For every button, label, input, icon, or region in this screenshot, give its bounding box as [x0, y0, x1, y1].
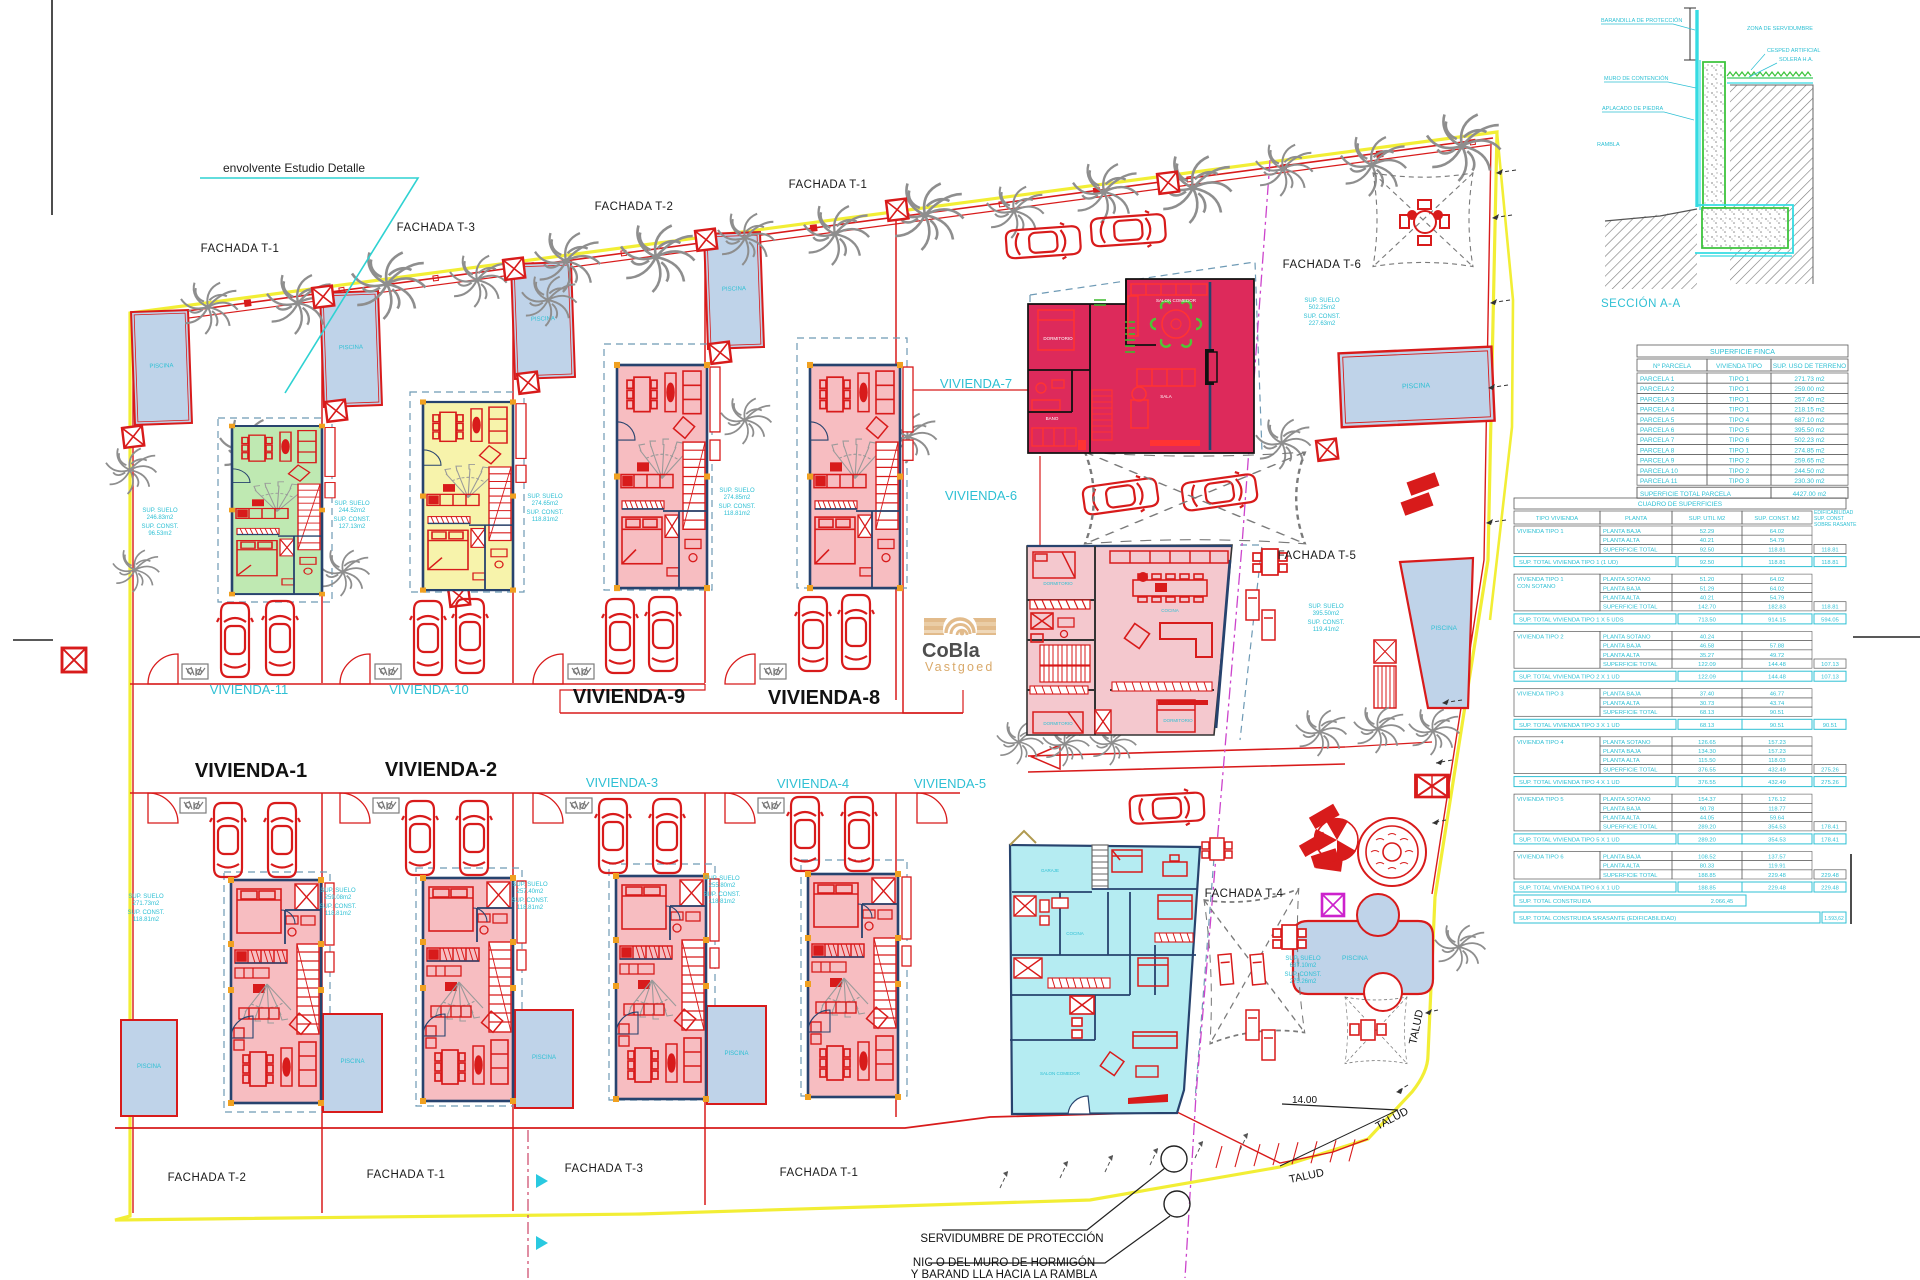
svg-text:230.30 m2: 230.30 m2 — [1794, 478, 1825, 485]
svg-text:43.74: 43.74 — [1770, 701, 1785, 707]
svg-text:PISCINA: PISCINA — [1402, 382, 1431, 390]
svg-text:SUPERFICIE TOTAL PARCELA: SUPERFICIE TOTAL PARCELA — [1640, 491, 1732, 498]
svg-text:914.15: 914.15 — [1768, 617, 1786, 623]
svg-text:PLANTA BAJA: PLANTA BAJA — [1603, 749, 1641, 755]
svg-text:46.77: 46.77 — [1770, 692, 1785, 698]
svg-text:VIVIENDA TIPO 2: VIVIENDA TIPO 2 — [1517, 634, 1564, 640]
svg-text:127.13m2: 127.13m2 — [339, 524, 366, 530]
svg-text:594.05: 594.05 — [1821, 617, 1839, 623]
svg-text:MURO DE CONTENCIÓN: MURO DE CONTENCIÓN — [1604, 75, 1669, 82]
svg-text:259.00 m2: 259.00 m2 — [1794, 386, 1825, 393]
svg-text:118.81m2: 118.81m2 — [517, 905, 544, 911]
svg-text:275.26m2: 275.26m2 — [1290, 979, 1317, 985]
svg-text:118.77: 118.77 — [1768, 806, 1785, 812]
svg-text:118.81m2: 118.81m2 — [532, 517, 559, 523]
svg-text:PLANTA BAJA: PLANTA BAJA — [1603, 806, 1641, 812]
svg-text:CUADRO DE SUPERFICIES: CUADRO DE SUPERFICIES — [1638, 501, 1723, 508]
svg-text:354.53: 354.53 — [1768, 837, 1786, 843]
svg-text:35.27: 35.27 — [1700, 653, 1715, 659]
svg-text:VIVIENDA TIPO 6: VIVIENDA TIPO 6 — [1517, 854, 1564, 860]
svg-text:SUPERFICIE TOTAL: SUPERFICIE TOTAL — [1603, 662, 1658, 668]
svg-text:118.81: 118.81 — [1821, 605, 1838, 611]
svg-text:PARCELA 1: PARCELA 1 — [1640, 376, 1675, 383]
svg-text:SUPERFICIE TOTAL: SUPERFICIE TOTAL — [1603, 547, 1658, 553]
svg-text:VIVIENDA-8: VIVIENDA-8 — [768, 687, 880, 709]
svg-text:VIVIENDA-3: VIVIENDA-3 — [586, 775, 658, 790]
svg-text:ZONA DE SERVIDUMBRE: ZONA DE SERVIDUMBRE — [1747, 26, 1813, 32]
svg-text:SUP. SUELO: SUP. SUELO — [1308, 604, 1344, 610]
svg-text:Y BARAND LLA HACIA LA RAMBLA: Y BARAND LLA HACIA LA RAMBLA — [911, 1269, 1098, 1280]
svg-text:54.79: 54.79 — [1770, 596, 1785, 602]
svg-text:289.20: 289.20 — [1698, 837, 1716, 843]
svg-text:SUP. CONST.: SUP. CONST. — [1285, 972, 1322, 978]
svg-text:PLANTA ALTA: PLANTA ALTA — [1603, 701, 1640, 707]
svg-text:SOBRE RASANTE: SOBRE RASANTE — [1814, 522, 1857, 528]
svg-text:144.48: 144.48 — [1768, 662, 1786, 668]
svg-text:PLANTA ALTA: PLANTA ALTA — [1603, 596, 1640, 602]
svg-text:64.02: 64.02 — [1770, 529, 1785, 535]
svg-text:SUP. SUELO: SUP. SUELO — [1285, 956, 1321, 962]
svg-text:FACHADA T-1: FACHADA T-1 — [789, 179, 868, 191]
svg-text:TIPO 2: TIPO 2 — [1729, 458, 1750, 465]
svg-text:SOLERA H.A.: SOLERA H.A. — [1779, 57, 1814, 63]
svg-text:SUP. CONST.: SUP. CONST. — [527, 510, 564, 516]
svg-text:SUP. TOTAL VIVIENDA TIPO 6 X 1: SUP. TOTAL VIVIENDA TIPO 6 X 1 UD — [1519, 886, 1620, 892]
svg-text:RAMBLA: RAMBLA — [1597, 142, 1620, 148]
svg-text:SUP. SUELO: SUP. SUELO — [320, 888, 356, 894]
svg-text:119.41m2: 119.41m2 — [1313, 627, 1340, 633]
svg-text:SUP. SUELO: SUP. SUELO — [1304, 298, 1340, 304]
svg-text:SUP. TOTAL VIVIENDA TIPO 1 X 5: SUP. TOTAL VIVIENDA TIPO 1 X 5 UDS — [1519, 617, 1624, 623]
svg-text:FACHADA T-4: FACHADA T-4 — [1205, 888, 1284, 900]
svg-text:CoBla: CoBla — [922, 640, 981, 662]
svg-text:SUP. SUELO: SUP. SUELO — [719, 488, 755, 494]
svg-text:229.48: 229.48 — [1768, 873, 1786, 879]
svg-text:FACHADA T-5: FACHADA T-5 — [1278, 550, 1357, 562]
svg-text:PLANTA BAJA: PLANTA BAJA — [1603, 644, 1641, 650]
svg-text:PLANTA ALTA: PLANTA ALTA — [1603, 864, 1640, 870]
svg-text:126.65: 126.65 — [1698, 740, 1716, 746]
svg-text:DORMITORIO: DORMITORIO — [1043, 336, 1073, 341]
svg-text:257.40 m2: 257.40 m2 — [1794, 396, 1825, 403]
svg-text:SUP. CONST.: SUP. CONST. — [320, 904, 357, 910]
svg-text:VIVIENDA TIPO 1: VIVIENDA TIPO 1 — [1517, 529, 1564, 535]
svg-text:178.41: 178.41 — [1821, 825, 1839, 831]
svg-text:SECCIÓN A-A: SECCIÓN A-A — [1601, 297, 1681, 310]
svg-text:SUP. CONST.: SUP. CONST. — [334, 517, 371, 523]
svg-text:274.85m2: 274.85m2 — [724, 495, 751, 501]
svg-text:PLANTA BAJA: PLANTA BAJA — [1603, 529, 1641, 535]
svg-text:PLANTA ALTA: PLANTA ALTA — [1603, 653, 1640, 659]
svg-text:PISCINA: PISCINA — [137, 1064, 161, 1070]
svg-text:157.23: 157.23 — [1768, 740, 1786, 746]
svg-text:PISCINA: PISCINA — [339, 345, 363, 352]
svg-text:PARCELA 6: PARCELA 6 — [1640, 427, 1675, 434]
svg-text:44.05: 44.05 — [1700, 816, 1715, 822]
svg-text:PARCELA 4: PARCELA 4 — [1640, 407, 1675, 414]
svg-text:VIVIENDA TIPO 5: VIVIENDA TIPO 5 — [1517, 797, 1564, 803]
svg-text:118.81: 118.81 — [1768, 547, 1785, 553]
svg-text:Vastgoed: Vastgoed — [925, 660, 995, 674]
svg-text:TIPO 1: TIPO 1 — [1729, 376, 1750, 383]
svg-text:TIPO VIVIENDA: TIPO VIVIENDA — [1536, 516, 1578, 522]
svg-text:SUP. CONST.: SUP. CONST. — [1308, 620, 1345, 626]
svg-text:SUP. TOTAL VIVIENDA TIPO 5 X 1: SUP. TOTAL VIVIENDA TIPO 5 X 1 UD — [1519, 837, 1620, 843]
svg-text:SUPERFICIE TOTAL: SUPERFICIE TOTAL — [1603, 605, 1658, 611]
svg-text:PLANTA BAJA: PLANTA BAJA — [1603, 586, 1641, 592]
svg-text:57.88: 57.88 — [1770, 644, 1785, 650]
svg-text:VIVIENDA-11: VIVIENDA-11 — [210, 682, 289, 697]
svg-text:SUP. TOTAL CONSTRUIDA S/RASANT: SUP. TOTAL CONSTRUIDA S/RASANTE (EDIFICA… — [1519, 916, 1676, 922]
svg-text:VIVIENDA-2: VIVIENDA-2 — [385, 759, 497, 781]
svg-text:DORMITORIO: DORMITORIO — [1043, 721, 1073, 726]
svg-text:246.83m2: 246.83m2 — [147, 515, 174, 521]
svg-text:BANO: BANO — [1046, 416, 1059, 421]
svg-text:FACHADA T-2: FACHADA T-2 — [168, 1172, 247, 1184]
svg-text:59.64: 59.64 — [1770, 816, 1785, 822]
svg-text:118.81: 118.81 — [1768, 560, 1785, 566]
svg-text:68.13: 68.13 — [1700, 710, 1715, 716]
svg-text:SUP. SUELO: SUP. SUELO — [128, 894, 164, 900]
svg-text:SUP. TOTAL VIVIENDA TIPO 2 X 1: SUP. TOTAL VIVIENDA TIPO 2 X 1 UD — [1519, 675, 1620, 681]
svg-text:SUP. TOTAL CONSTRUIDA: SUP. TOTAL CONSTRUIDA — [1519, 899, 1591, 905]
svg-text:49.72: 49.72 — [1770, 653, 1785, 659]
svg-text:VIVIENDA TIPO 1: VIVIENDA TIPO 1 — [1517, 577, 1564, 583]
svg-text:PARCELA 2: PARCELA 2 — [1640, 386, 1675, 393]
svg-text:PLANTA ALTA: PLANTA ALTA — [1603, 538, 1640, 544]
svg-text:PISCINA: PISCINA — [532, 1055, 556, 1061]
svg-text:CESPED ARTIFICIAL: CESPED ARTIFICIAL — [1767, 48, 1820, 54]
svg-text:APLACADO DE PIEDRA: APLACADO DE PIEDRA — [1602, 106, 1663, 112]
svg-text:275.26: 275.26 — [1821, 780, 1839, 786]
svg-text:118.81m2: 118.81m2 — [325, 911, 352, 917]
svg-text:255.80m2: 255.80m2 — [709, 883, 736, 889]
svg-text:289.20: 289.20 — [1698, 825, 1716, 831]
svg-text:VIVIENDA-10: VIVIENDA-10 — [389, 682, 468, 697]
svg-text:502.23 m2: 502.23 m2 — [1794, 437, 1825, 444]
svg-text:188.85: 188.85 — [1698, 873, 1716, 879]
svg-text:SUPERFICIE TOTAL: SUPERFICIE TOTAL — [1603, 767, 1658, 773]
svg-text:54.79: 54.79 — [1770, 538, 1785, 544]
svg-text:90.78: 90.78 — [1700, 806, 1715, 812]
svg-text:271.73m2: 271.73m2 — [133, 901, 160, 907]
svg-text:SUPERFICIE TOTAL: SUPERFICIE TOTAL — [1603, 825, 1658, 831]
svg-text:FACHADA T-6: FACHADA T-6 — [1283, 259, 1362, 271]
svg-text:118.81: 118.81 — [1821, 560, 1838, 566]
svg-text:FACHADA T-1: FACHADA T-1 — [201, 243, 280, 255]
svg-text:PARCELA 7: PARCELA 7 — [1640, 437, 1675, 444]
svg-text:687.10m2: 687.10m2 — [1290, 963, 1317, 969]
svg-text:PLANTA SOTANO: PLANTA SOTANO — [1603, 740, 1651, 746]
svg-text:PARCELA 3: PARCELA 3 — [1640, 396, 1675, 403]
svg-text:229.48: 229.48 — [1821, 873, 1839, 879]
svg-text:687.10 m2: 687.10 m2 — [1794, 417, 1825, 424]
svg-text:52.29: 52.29 — [1700, 529, 1715, 535]
svg-text:SUP. SUELO: SUP. SUELO — [527, 494, 563, 500]
svg-text:PLANTA ALTA: PLANTA ALTA — [1603, 816, 1640, 822]
svg-text:244.50 m2: 244.50 m2 — [1794, 468, 1825, 475]
svg-text:432.49: 432.49 — [1768, 767, 1786, 773]
svg-text:VIVIENDA-5: VIVIENDA-5 — [914, 776, 986, 791]
svg-text:PISCINA: PISCINA — [722, 286, 746, 293]
svg-text:SALON COMEDOR: SALON COMEDOR — [1040, 1071, 1081, 1076]
svg-text:SUP. TOTAL VIVIENDA TIPO 1 (1: SUP. TOTAL VIVIENDA TIPO 1 (1 UD) — [1519, 560, 1618, 566]
svg-text:271.73 m2: 271.73 m2 — [1794, 376, 1825, 383]
svg-text:274.65m2: 274.65m2 — [532, 501, 559, 507]
svg-text:NIC O DEL MURO DE HORMIGÓN: NIC O DEL MURO DE HORMIGÓN — [913, 1256, 1095, 1269]
svg-text:PLANTA ALTA: PLANTA ALTA — [1603, 758, 1640, 764]
svg-text:176.12: 176.12 — [1768, 797, 1786, 803]
svg-text:118.81: 118.81 — [1821, 547, 1838, 553]
svg-text:107.13: 107.13 — [1821, 662, 1839, 668]
svg-text:SERVIDUMBRE DE PROTECCIÓN: SERVIDUMBRE DE PROTECCIÓN — [920, 1232, 1103, 1245]
svg-text:PARCELA 8: PARCELA 8 — [1640, 447, 1675, 454]
svg-text:PISCINA: PISCINA — [340, 1059, 364, 1065]
svg-text:SUP. SUELO: SUP. SUELO — [334, 501, 370, 507]
svg-text:PLANTA: PLANTA — [1625, 516, 1647, 522]
svg-text:118.81m2: 118.81m2 — [709, 899, 736, 905]
svg-text:118.03: 118.03 — [1768, 758, 1785, 764]
svg-text:PISCINA: PISCINA — [149, 363, 173, 370]
svg-text:PLANTA SOTANO: PLANTA SOTANO — [1603, 797, 1651, 803]
svg-text:FACHADA T-3: FACHADA T-3 — [565, 1163, 644, 1175]
svg-text:229.48: 229.48 — [1821, 886, 1839, 892]
svg-text:90.51: 90.51 — [1823, 723, 1838, 729]
svg-text:TIPO 1: TIPO 1 — [1729, 407, 1750, 414]
svg-text:PLANTA SOTANO: PLANTA SOTANO — [1603, 634, 1651, 640]
svg-text:257.40m2: 257.40m2 — [517, 889, 544, 895]
svg-text:376.55: 376.55 — [1698, 780, 1716, 786]
svg-text:SUP. TOTAL VIVIENDA TIPO 4 X 1: SUP. TOTAL VIVIENDA TIPO 4 X 1 UD — [1519, 780, 1620, 786]
svg-text:64.02: 64.02 — [1770, 577, 1785, 583]
svg-text:122.09: 122.09 — [1698, 675, 1716, 681]
svg-text:SUPERFICIE TOTAL: SUPERFICIE TOTAL — [1603, 873, 1658, 879]
svg-text:FACHADA T-1: FACHADA T-1 — [367, 1169, 446, 1181]
svg-text:142.70: 142.70 — [1698, 605, 1716, 611]
svg-text:92.50: 92.50 — [1700, 547, 1715, 553]
svg-text:51.29: 51.29 — [1700, 586, 1715, 592]
svg-text:SUP. CONST.: SUP. CONST. — [719, 504, 756, 510]
svg-text:SUP. CONST.: SUP. CONST. — [1304, 314, 1341, 320]
svg-text:134.30: 134.30 — [1698, 749, 1716, 755]
svg-text:DORMITORIO: DORMITORIO — [1043, 581, 1073, 586]
svg-text:137.57: 137.57 — [1768, 854, 1786, 860]
svg-text:90.51: 90.51 — [1770, 710, 1785, 716]
svg-text:VIVIENDA-7: VIVIENDA-7 — [940, 376, 1012, 391]
svg-text:FACHADA T-1: FACHADA T-1 — [780, 1167, 859, 1179]
svg-text:PISCINA: PISCINA — [1342, 955, 1369, 962]
svg-text:154.37: 154.37 — [1698, 797, 1716, 803]
svg-text:VIVIENDA TIPO 3: VIVIENDA TIPO 3 — [1517, 692, 1564, 698]
svg-text:PARCELA 9: PARCELA 9 — [1640, 458, 1675, 465]
svg-text:PARCELA 10: PARCELA 10 — [1640, 468, 1678, 475]
svg-text:PARCELA 5: PARCELA 5 — [1640, 417, 1675, 424]
svg-text:395.50 m2: 395.50 m2 — [1794, 427, 1825, 434]
svg-text:182.83: 182.83 — [1768, 605, 1786, 611]
svg-text:TIPO 5: TIPO 5 — [1729, 427, 1750, 434]
svg-text:244.52m2: 244.52m2 — [339, 508, 366, 514]
svg-text:4427.00 m2: 4427.00 m2 — [1793, 491, 1827, 498]
svg-text:TIPO 6: TIPO 6 — [1729, 437, 1750, 444]
svg-text:37.40: 37.40 — [1700, 692, 1715, 698]
svg-text:VIVIENDA-1: VIVIENDA-1 — [195, 760, 307, 782]
svg-text:PLANTA BAJA: PLANTA BAJA — [1603, 854, 1641, 860]
svg-text:PISCINA: PISCINA — [1431, 625, 1458, 632]
svg-text:FACHADA T-3: FACHADA T-3 — [397, 222, 476, 234]
svg-text:FACHADA T-2: FACHADA T-2 — [595, 201, 674, 213]
svg-text:SUP. USO DE TERRENO: SUP. USO DE TERRENO — [1773, 363, 1846, 370]
svg-text:40.21: 40.21 — [1700, 538, 1715, 544]
svg-text:COCINA: COCINA — [1066, 931, 1084, 936]
svg-text:DORMITORIO: DORMITORIO — [1163, 718, 1193, 723]
svg-text:188.85: 188.85 — [1698, 886, 1716, 892]
svg-text:80.33: 80.33 — [1700, 864, 1715, 870]
svg-text:713.50: 713.50 — [1698, 617, 1716, 623]
svg-text:2.066,45: 2.066,45 — [1711, 899, 1734, 905]
svg-text:VIVIENDA-4: VIVIENDA-4 — [777, 776, 849, 791]
svg-text:92.50: 92.50 — [1700, 560, 1715, 566]
svg-text:TIPO 2: TIPO 2 — [1729, 468, 1750, 475]
svg-text:122.09: 122.09 — [1698, 662, 1716, 668]
svg-text:218.15 m2: 218.15 m2 — [1794, 407, 1825, 414]
svg-text:envolvente Estudio Detalle: envolvente Estudio Detalle — [223, 161, 365, 175]
svg-text:SUPERFICIE TOTAL: SUPERFICIE TOTAL — [1603, 710, 1658, 716]
svg-text:SUP. TOTAL VIVIENDA TIPO 3 X 1: SUP. TOTAL VIVIENDA TIPO 3 X 1 UD — [1519, 723, 1620, 729]
svg-text:96.53m2: 96.53m2 — [148, 531, 172, 537]
svg-text:376.55: 376.55 — [1698, 767, 1716, 773]
svg-text:30.73: 30.73 — [1700, 701, 1715, 707]
svg-text:VIVIENDA-6: VIVIENDA-6 — [945, 488, 1017, 503]
svg-text:VIVIENDA TIPO: VIVIENDA TIPO — [1716, 363, 1762, 370]
svg-text:178.41: 178.41 — [1821, 837, 1839, 843]
svg-text:115.50: 115.50 — [1698, 758, 1715, 764]
svg-text:PARCELA 11: PARCELA 11 — [1640, 478, 1678, 485]
svg-text:VIVIENDA-9: VIVIENDA-9 — [573, 686, 685, 708]
svg-text:90.51: 90.51 — [1770, 723, 1785, 729]
svg-text:40.21: 40.21 — [1700, 596, 1715, 602]
svg-text:259.08m2: 259.08m2 — [325, 895, 352, 901]
svg-text:395.50m2: 395.50m2 — [1313, 611, 1340, 617]
svg-text:227.63m2: 227.63m2 — [1309, 321, 1336, 327]
svg-text:259.65 m2: 259.65 m2 — [1794, 458, 1825, 465]
svg-text:118.81m2: 118.81m2 — [133, 917, 160, 923]
svg-text:SALON COMEDOR: SALON COMEDOR — [1156, 298, 1197, 303]
svg-text:TIPO 1: TIPO 1 — [1729, 396, 1750, 403]
svg-text:COCINA: COCINA — [1161, 608, 1179, 613]
svg-text:157.23: 157.23 — [1768, 749, 1786, 755]
svg-text:TIPO 4: TIPO 4 — [1729, 417, 1750, 424]
svg-text:CON SOTANO: CON SOTANO — [1517, 584, 1556, 590]
svg-text:502.25m2: 502.25m2 — [1309, 305, 1336, 311]
svg-text:119.91: 119.91 — [1768, 864, 1785, 870]
svg-text:1.593,62: 1.593,62 — [1824, 916, 1844, 922]
svg-text:40.24: 40.24 — [1700, 634, 1715, 640]
svg-text:SALA: SALA — [1160, 394, 1172, 399]
svg-text:GARAJE: GARAJE — [1041, 868, 1059, 873]
svg-text:SUP. CONST.: SUP. CONST. — [704, 892, 741, 898]
svg-text:TIPO 1: TIPO 1 — [1729, 447, 1750, 454]
svg-text:SUP. CONST.: SUP. CONST. — [512, 898, 549, 904]
svg-text:108.52: 108.52 — [1698, 854, 1716, 860]
svg-text:51.20: 51.20 — [1700, 577, 1715, 583]
svg-text:274.85 m2: 274.85 m2 — [1794, 447, 1825, 454]
svg-text:SUP. UTIL M2: SUP. UTIL M2 — [1689, 516, 1725, 522]
svg-text:64.02: 64.02 — [1770, 586, 1785, 592]
svg-text:SUP. CONST. M2: SUP. CONST. M2 — [1754, 516, 1799, 522]
svg-text:TIPO 3: TIPO 3 — [1729, 478, 1750, 485]
svg-text:354.53: 354.53 — [1768, 825, 1786, 831]
svg-text:SUP. SUELO: SUP. SUELO — [704, 876, 740, 882]
svg-text:432.49: 432.49 — [1768, 780, 1786, 786]
svg-text:SUP. SUELO: SUP. SUELO — [142, 508, 178, 514]
svg-text:Nº PARCELA: Nº PARCELA — [1653, 363, 1692, 370]
svg-text:68.13: 68.13 — [1700, 723, 1715, 729]
svg-text:SUPERFICIE FINCA: SUPERFICIE FINCA — [1710, 349, 1775, 356]
svg-text:144.48: 144.48 — [1768, 675, 1786, 681]
svg-text:TIPO 1: TIPO 1 — [1729, 386, 1750, 393]
svg-text:118.81m2: 118.81m2 — [724, 511, 751, 517]
svg-text:107.13: 107.13 — [1821, 675, 1839, 681]
svg-text:229.48: 229.48 — [1768, 886, 1786, 892]
svg-text:46.58: 46.58 — [1700, 644, 1715, 650]
svg-text:PLANTA BAJA: PLANTA BAJA — [1603, 692, 1641, 698]
svg-text:SUP. CONST.: SUP. CONST. — [128, 910, 165, 916]
svg-text:SUP. SUELO: SUP. SUELO — [512, 882, 548, 888]
svg-text:BARANDILLA DE PROTECCIÓN: BARANDILLA DE PROTECCIÓN — [1601, 17, 1682, 24]
svg-text:PLANTA SOTANO: PLANTA SOTANO — [1603, 577, 1651, 583]
svg-text:SUP. CONST.: SUP. CONST. — [142, 524, 179, 530]
svg-text:275.26: 275.26 — [1821, 767, 1839, 773]
svg-text:PISCINA: PISCINA — [724, 1051, 748, 1057]
svg-text:VIVIENDA TIPO 4: VIVIENDA TIPO 4 — [1517, 740, 1564, 746]
